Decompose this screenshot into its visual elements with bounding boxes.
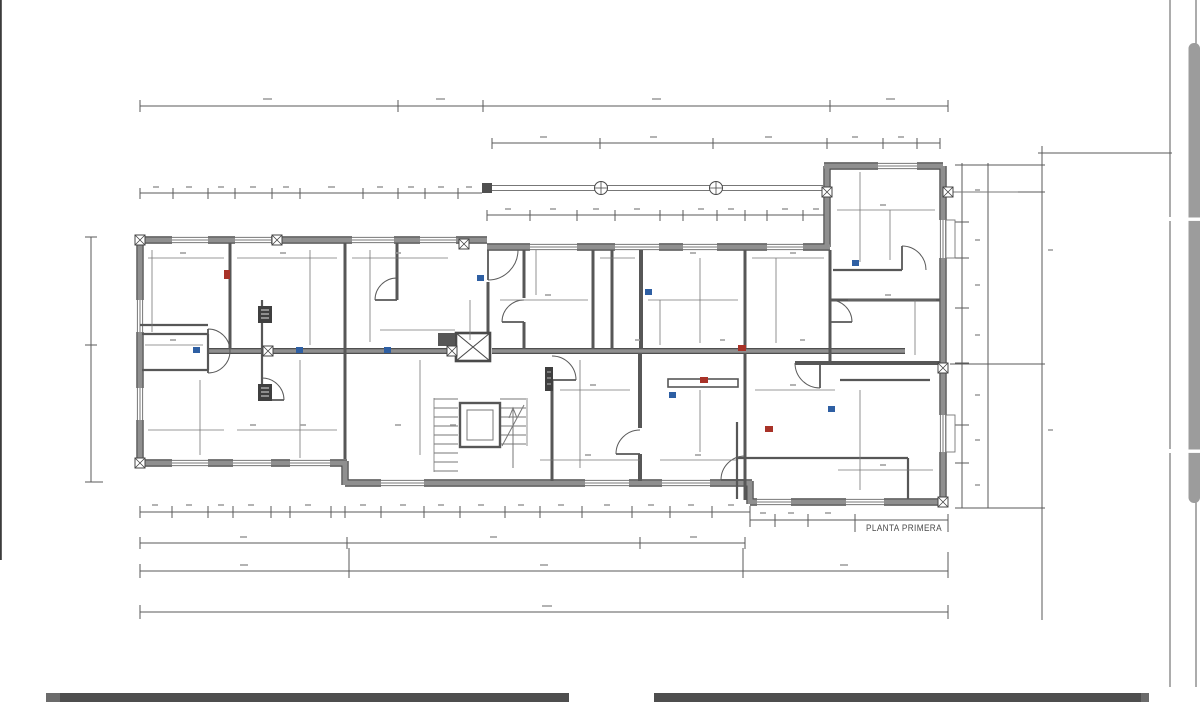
service-markers xyxy=(193,260,859,432)
column-tie-icon xyxy=(595,182,608,195)
red-marker xyxy=(765,426,773,432)
blue-marker xyxy=(193,347,200,353)
balcony-railing xyxy=(482,182,1018,195)
stair-direction-arrow-icon xyxy=(502,405,524,468)
red-marker xyxy=(738,345,746,351)
stitch-seams xyxy=(1045,217,1200,453)
blue-marker xyxy=(669,392,676,398)
interior-dim-texture xyxy=(145,172,936,490)
blue-marker xyxy=(477,275,484,281)
blue-marker xyxy=(645,289,652,295)
bay-window xyxy=(946,220,955,258)
bay-window xyxy=(946,415,955,452)
blue-marker xyxy=(384,347,391,353)
red-marker xyxy=(224,270,230,279)
plan-title: PLANTA PRIMERA xyxy=(866,523,942,533)
floorplan-sheet: PLANTA PRIMERA xyxy=(0,0,1200,702)
elevator-shaft-icon xyxy=(456,333,490,361)
electrical-panel-icon xyxy=(258,384,272,401)
document-viewer: PLANTA PRIMERA xyxy=(0,0,1200,702)
electrical-panel-icon xyxy=(545,367,553,391)
blue-marker xyxy=(828,406,835,412)
blue-marker xyxy=(296,347,303,353)
dimension-lines xyxy=(85,99,1172,620)
column-tie-icon xyxy=(482,183,492,193)
column-tie-icon xyxy=(710,182,723,195)
red-marker xyxy=(700,377,708,383)
blue-marker xyxy=(852,260,859,266)
page-frame-lines xyxy=(1170,0,1196,687)
duct-box xyxy=(438,333,455,346)
electrical-panel-icon xyxy=(258,306,272,323)
